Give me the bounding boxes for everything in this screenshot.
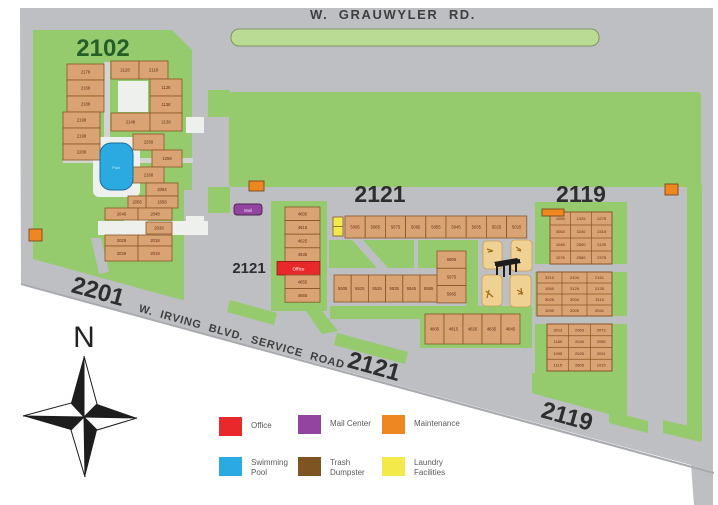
svg-text:2058: 2058 — [132, 199, 142, 204]
svg-text:2005: 2005 — [570, 308, 580, 313]
svg-text:2168: 2168 — [81, 85, 91, 90]
svg-text:2500: 2500 — [577, 242, 587, 247]
svg-text:1055: 1055 — [556, 216, 566, 221]
svg-text:2028: 2028 — [117, 238, 127, 243]
svg-text:4635: 4635 — [298, 252, 308, 257]
svg-text:4665: 4665 — [298, 293, 308, 298]
svg-text:2119: 2119 — [556, 181, 606, 207]
svg-text:2128: 2128 — [120, 67, 130, 72]
svg-text:2029: 2029 — [117, 251, 127, 256]
svg-text:2041: 2041 — [595, 308, 605, 313]
svg-text:Dumpster: Dumpster — [330, 468, 365, 477]
svg-text:2138: 2138 — [161, 119, 171, 124]
svg-text:2038: 2038 — [154, 225, 164, 230]
svg-text:2198: 2198 — [77, 117, 87, 122]
svg-text:5525: 5525 — [372, 286, 382, 291]
svg-text:2040: 2040 — [575, 339, 585, 344]
svg-text:3063: 3063 — [556, 229, 566, 234]
svg-text:2019: 2019 — [150, 251, 160, 256]
svg-text:5535: 5535 — [390, 286, 400, 291]
svg-text:2258: 2258 — [144, 139, 154, 144]
svg-text:1128: 1128 — [161, 85, 171, 90]
svg-text:2168: 2168 — [144, 172, 154, 177]
svg-text:1060: 1060 — [545, 286, 555, 291]
svg-text:4815: 4815 — [449, 326, 459, 331]
svg-text:5055: 5055 — [431, 224, 441, 229]
svg-text:5075: 5075 — [391, 224, 401, 229]
svg-text:5035: 5035 — [472, 224, 482, 229]
svg-text:5015: 5015 — [512, 224, 522, 229]
svg-text:3210: 3210 — [545, 275, 555, 280]
svg-text:W. GRAUWYLER RD.: W. GRAUWYLER RD. — [310, 7, 476, 22]
svg-text:1015: 1015 — [597, 363, 607, 368]
svg-text:2375: 2375 — [597, 255, 607, 260]
svg-text:Maintenance: Maintenance — [414, 419, 460, 428]
svg-text:Office: Office — [251, 421, 272, 430]
svg-text:Facilities: Facilities — [414, 468, 445, 477]
svg-text:5905: 5905 — [447, 257, 457, 262]
svg-text:Mail: Mail — [244, 208, 252, 213]
svg-text:Mail Center: Mail Center — [330, 419, 371, 428]
svg-text:2125: 2125 — [570, 286, 580, 291]
svg-text:5515: 5515 — [355, 286, 365, 291]
svg-text:2121: 2121 — [232, 260, 265, 277]
svg-text:N: N — [73, 321, 95, 354]
svg-text:2064: 2064 — [157, 187, 167, 192]
svg-text:4655: 4655 — [298, 279, 308, 284]
svg-text:5505: 5505 — [338, 286, 348, 291]
svg-text:4835: 4835 — [487, 326, 497, 331]
svg-text:2315: 2315 — [597, 229, 607, 234]
svg-text:5085: 5085 — [371, 224, 381, 229]
svg-text:2178: 2178 — [81, 69, 91, 74]
svg-text:3013: 3013 — [553, 327, 563, 332]
svg-text:5025: 5025 — [492, 224, 502, 229]
svg-text:2055: 2055 — [597, 339, 607, 344]
svg-text:Trash: Trash — [330, 458, 350, 467]
svg-text:2073: 2073 — [597, 327, 607, 332]
svg-text:1138: 1138 — [161, 102, 171, 107]
svg-text:1075: 1075 — [556, 255, 566, 260]
svg-text:4845: 4845 — [506, 326, 516, 331]
svg-text:2805: 2805 — [575, 363, 585, 368]
svg-text:5965: 5965 — [447, 292, 457, 297]
svg-text:1058: 1058 — [157, 199, 167, 204]
svg-text:1090: 1090 — [545, 308, 555, 313]
svg-text:2046: 2046 — [117, 211, 127, 216]
svg-text:1180: 1180 — [554, 339, 563, 344]
svg-text:5095: 5095 — [350, 224, 360, 229]
svg-text:5065: 5065 — [411, 224, 421, 229]
svg-text:2560: 2560 — [577, 255, 587, 260]
svg-text:2135: 2135 — [595, 286, 605, 291]
svg-text:2190: 2190 — [597, 242, 607, 247]
svg-text:2018: 2018 — [150, 238, 160, 243]
svg-text:2031: 2031 — [597, 351, 607, 356]
svg-text:3025: 3025 — [545, 297, 555, 302]
svg-text:2048: 2048 — [150, 211, 160, 216]
svg-text:2208: 2208 — [77, 149, 87, 154]
svg-text:2198: 2198 — [77, 133, 87, 138]
svg-text:1258: 1258 — [162, 156, 172, 161]
svg-text:5975: 5975 — [447, 274, 457, 279]
svg-text:1005: 1005 — [553, 351, 563, 356]
svg-text:5045: 5045 — [451, 224, 461, 229]
svg-text:2025: 2025 — [575, 351, 585, 356]
svg-text:Office: Office — [293, 267, 305, 272]
svg-text:4805: 4805 — [430, 326, 440, 331]
svg-text:4625: 4625 — [298, 238, 308, 243]
svg-text:4825: 4825 — [468, 326, 478, 331]
svg-text:3240: 3240 — [577, 229, 587, 234]
svg-text:2963: 2963 — [575, 327, 585, 332]
svg-text:5545: 5545 — [407, 286, 417, 291]
svg-text:2121: 2121 — [354, 181, 405, 207]
svg-text:Swimming: Swimming — [251, 458, 288, 467]
svg-text:1325: 1325 — [577, 216, 587, 221]
svg-text:2118: 2118 — [149, 67, 159, 72]
svg-text:1115: 1115 — [554, 363, 563, 368]
svg-text:2151: 2151 — [595, 275, 605, 280]
svg-text:Pool: Pool — [251, 468, 267, 477]
svg-text:3115: 3115 — [595, 297, 604, 302]
svg-text:Laundry: Laundry — [414, 458, 443, 467]
svg-text:2188: 2188 — [81, 101, 91, 106]
svg-text:2148: 2148 — [126, 119, 136, 124]
svg-text:2275: 2275 — [597, 216, 607, 221]
svg-text:1045: 1045 — [556, 242, 566, 247]
svg-text:2100: 2100 — [570, 275, 580, 280]
svg-text:4605: 4605 — [298, 211, 308, 216]
svg-text:2102: 2102 — [76, 35, 129, 62]
svg-text:Pool: Pool — [112, 166, 119, 170]
svg-text:4615: 4615 — [298, 225, 308, 230]
svg-text:3000: 3000 — [570, 297, 580, 302]
svg-text:5955: 5955 — [424, 286, 434, 291]
